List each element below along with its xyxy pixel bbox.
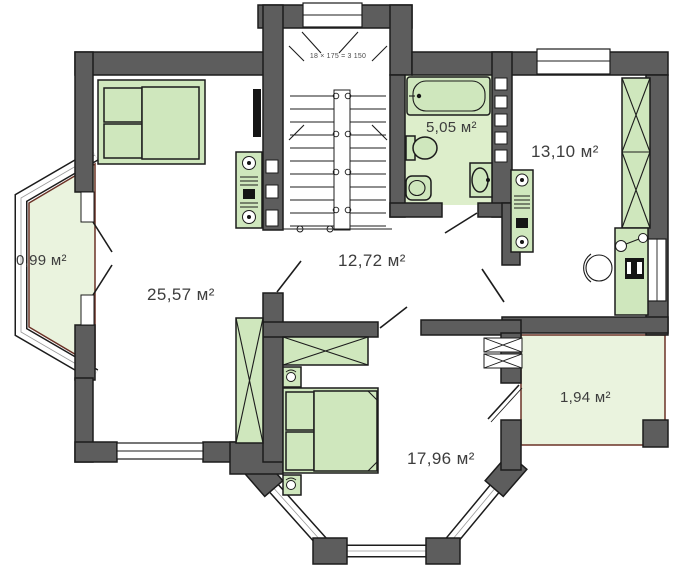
bathroom-door-leaf (445, 213, 477, 233)
wardrobe-bedroom-bottom (283, 337, 368, 365)
staircase (283, 32, 392, 232)
hall-area-label: 12,72 м² (338, 251, 406, 271)
pillow (104, 124, 142, 158)
floor-plan-drawing (0, 0, 700, 575)
wall-hall-bottom-left (263, 322, 378, 337)
bay-door-leaf (93, 265, 112, 295)
wall-balcony-post (643, 420, 668, 447)
nightstand (283, 367, 301, 387)
wardrobe-room13 (622, 78, 650, 228)
wall-bedroom-divider (263, 293, 283, 462)
bidet (406, 176, 431, 200)
mattress (314, 391, 377, 471)
wall-bathroom-left (390, 75, 405, 217)
balcony-left-area-label: 0,99 м² (16, 252, 67, 269)
pillow (104, 88, 142, 122)
nightstand (283, 475, 301, 495)
room13-top-window (537, 49, 610, 74)
wall-bathroom-bottom-left (390, 203, 442, 217)
room-top-right-area-label: 13,10 м² (531, 142, 599, 162)
bed-bottom (283, 388, 378, 473)
sink (470, 163, 492, 197)
tv-panel (253, 89, 261, 137)
wall-left-upper (75, 52, 93, 192)
wall-room13-bottom (502, 317, 668, 333)
toilet (406, 136, 437, 160)
balcony-right-area-label: 1,94 м² (560, 389, 611, 406)
radiator-bedroom-left (236, 152, 262, 228)
room13-door-leaf (482, 269, 504, 302)
bathroom-area-label: 5,05 м² (426, 119, 477, 136)
desk (615, 228, 648, 315)
stair-stringer (334, 90, 350, 230)
bay-post (313, 538, 347, 564)
bedroom-left-window (117, 443, 203, 459)
lamp (287, 373, 296, 382)
wall-top-left (75, 52, 265, 75)
bedroom-bottom-area-label: 17,96 м² (407, 449, 475, 469)
bay-door-leaf (93, 222, 112, 252)
office-chair (584, 254, 612, 282)
bay-door-frame (81, 295, 94, 325)
pillow (286, 392, 314, 430)
desk-lamp (639, 234, 648, 243)
wall-bottom-a (75, 442, 117, 462)
stair-direction-arrow (302, 32, 358, 53)
wall-left-post (75, 325, 95, 380)
bay-post (426, 538, 460, 564)
stair-window (303, 3, 362, 27)
wall-stair-right (390, 5, 412, 75)
mattress (142, 87, 199, 159)
radiator-room13 (511, 170, 533, 252)
pillow (286, 432, 314, 470)
desk-lamp (616, 241, 627, 252)
lamp (287, 481, 296, 490)
bay-door-frame (81, 192, 94, 222)
bedroom-bottom-door-leaf (380, 307, 407, 328)
bed-left (98, 80, 205, 164)
room13-right-window (648, 239, 666, 301)
balcony-door-leaf (488, 385, 522, 422)
wall-bedroom2-right-bottom (501, 420, 521, 470)
bathtub (407, 77, 490, 115)
bedroom-left-area-label: 25,57 м² (147, 285, 215, 305)
stair-dimension-note: 18 × 175 = 3 150 (283, 53, 393, 60)
floor-plan: 0,99 м² 25,57 м² 12,72 м² 5,05 м² 13,10 … (0, 0, 700, 575)
wardrobe-bedroom-left (236, 318, 263, 443)
bedroom-left-door-leaf (277, 261, 301, 292)
